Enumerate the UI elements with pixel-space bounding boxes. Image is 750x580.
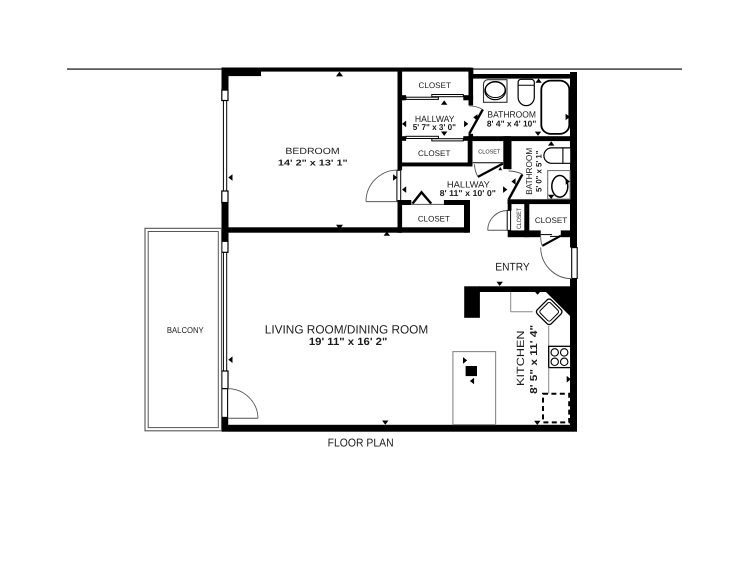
svg-text:BALCONY: BALCONY [167, 325, 204, 335]
svg-text:FLOOR PLAN: FLOOR PLAN [328, 438, 394, 450]
svg-text:BATHROOM: BATHROOM [524, 148, 534, 195]
svg-text:CLOSET: CLOSET [478, 148, 500, 155]
svg-text:KITCHEN: KITCHEN [515, 330, 527, 386]
svg-text:CLOSET: CLOSET [419, 81, 452, 90]
svg-text:5' 7" x 3' 0": 5' 7" x 3' 0" [413, 122, 456, 132]
svg-text:CLOSET: CLOSET [516, 208, 523, 229]
svg-text:BEDROOM: BEDROOM [285, 146, 339, 156]
svg-text:14' 2" x 13' 1": 14' 2" x 13' 1" [278, 157, 348, 167]
svg-text:CLOSET: CLOSET [418, 214, 450, 223]
svg-text:8' 11" x 10' 0": 8' 11" x 10' 0" [440, 188, 496, 198]
svg-text:5' 0" x 5' 1": 5' 0" x 5' 1" [535, 150, 544, 192]
svg-text:8' 4" x 4' 10": 8' 4" x 4' 10" [487, 118, 537, 128]
svg-text:CLOSET: CLOSET [535, 216, 567, 225]
svg-text:CLOSET: CLOSET [418, 149, 451, 158]
svg-text:8' 5" x 11' 4": 8' 5" x 11' 4" [529, 325, 540, 394]
svg-text:LIVING ROOM/DINING ROOM: LIVING ROOM/DINING ROOM [265, 322, 428, 336]
svg-text:ENTRY: ENTRY [495, 262, 530, 274]
svg-text:19' 11" x 16' 2": 19' 11" x 16' 2" [309, 336, 388, 348]
